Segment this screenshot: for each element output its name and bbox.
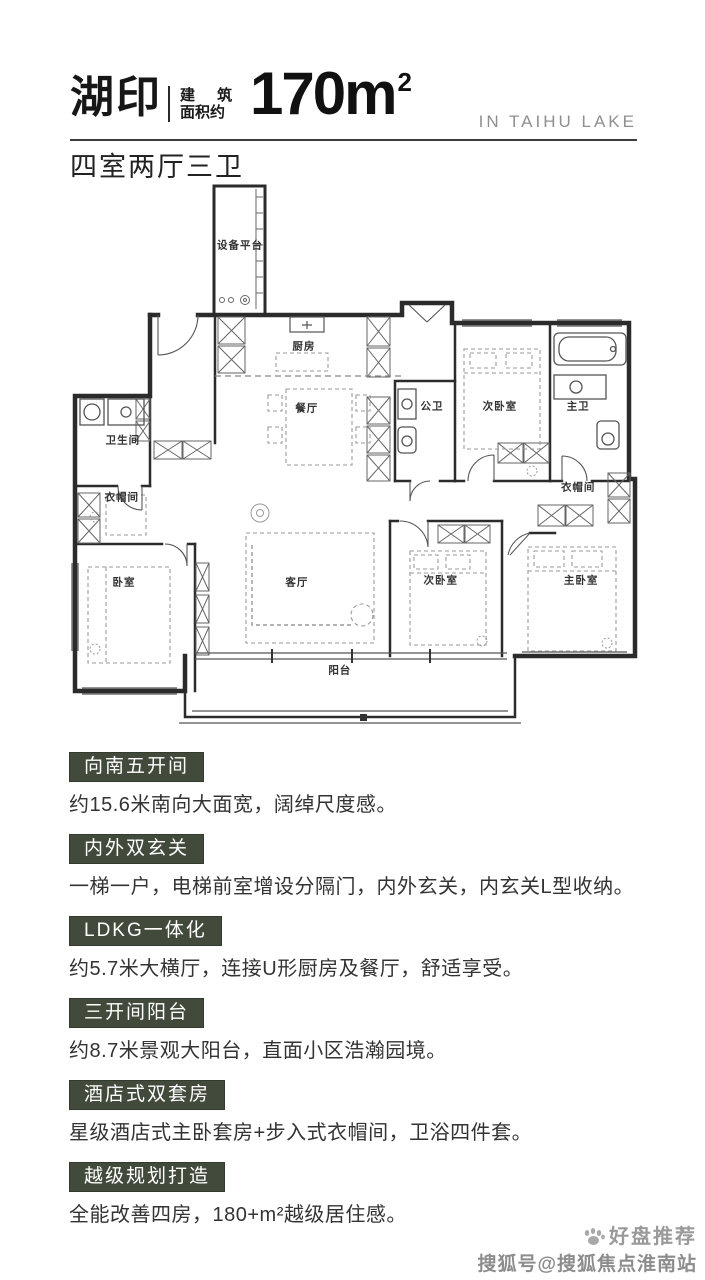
floor-plan-drawing (62, 183, 642, 733)
area-superscript: 2 (397, 67, 411, 97)
feature-badge: 越级规划打造 (69, 1162, 225, 1192)
feature-badge: 内外双玄关 (69, 834, 204, 864)
room-label-kitchen: 厨房 (292, 338, 315, 353)
room-label-master-bath: 主卫 (567, 398, 590, 413)
title-divider (168, 86, 170, 122)
watermark-line1: 好盘推荐 (609, 1226, 697, 1248)
header: 湖印 建 筑 面积约 170m2 IN TAIHU LAKE (70, 60, 637, 140)
project-name: 湖印 (70, 76, 162, 120)
room-label-dining: 餐厅 (295, 400, 318, 415)
room-label-master-bedroom: 主卧室 (564, 573, 599, 588)
feature-description: 约5.7米大横厅，连接U形厨房及餐厅，舒适享受。 (69, 957, 649, 982)
room-label-living: 客厅 (285, 574, 308, 589)
room-label-cloakroom-west: 衣帽间 (104, 490, 139, 505)
room-label-public-bath: 公卫 (421, 398, 444, 413)
area-prefix-line1: 建 筑 (180, 87, 246, 104)
feature-description: 约8.7米景观大阳台，直面小区浩瀚园境。 (69, 1039, 649, 1064)
paw-icon (583, 1228, 605, 1246)
room-label-bath-west: 卫生间 (106, 432, 141, 447)
room-label-bedroom2-north: 次卧室 (483, 398, 518, 413)
feature-description: 约15.6米南向大面宽，阔绰尺度感。 (69, 793, 649, 818)
watermark-brand: 好盘推荐 (477, 1220, 697, 1249)
flyer-page: 湖印 建 筑 面积约 170m2 IN TAIHU LAKE 四室两厅三卫 (0, 0, 705, 1280)
feature-item: 向南五开间 约15.6米南向大面宽，阔绰尺度感。 (69, 752, 649, 834)
feature-description: 一梯一户，电梯前室增设分隔门，内外玄关，内玄关L型收纳。 (69, 875, 649, 900)
room-label-balcony: 阳台 (328, 662, 351, 677)
area-number: 170m (250, 60, 395, 127)
feature-item: 内外双玄关 一梯一户，电梯前室增设分隔门，内外玄关，内玄关L型收纳。 (69, 834, 649, 916)
floor-plan: 设备平台 厨房 餐厅 公卫 次卧室 主卫 卫生间 衣帽间 卧室 客厅 次卧室 主… (62, 183, 642, 733)
watermark-line2: 搜狐号@搜狐焦点淮南站 (477, 1249, 697, 1276)
feature-item: 酒店式双套房 星级酒店式主卧套房+步入式衣帽间，卫浴四件套。 (69, 1080, 649, 1162)
room-label-equipment-platform: 设备平台 (217, 238, 263, 253)
room-label-cloakroom-east: 衣帽间 (561, 480, 596, 495)
feature-item: 三开间阳台 约8.7米景观大阳台，直面小区浩瀚园境。 (69, 998, 649, 1080)
area-value: 170m2 (250, 64, 410, 124)
feature-badge: 酒店式双套房 (69, 1080, 225, 1110)
feature-item: LDKG一体化 约5.7米大横厅，连接U形厨房及餐厅，舒适享受。 (69, 916, 649, 998)
feature-badge: 三开间阳台 (69, 998, 204, 1028)
layout-summary: 四室两厅三卫 (70, 145, 244, 184)
header-rule (70, 139, 637, 141)
feature-list: 向南五开间 约15.6米南向大面宽，阔绰尺度感。 内外双玄关 一梯一户，电梯前室… (69, 752, 649, 1244)
watermark: 好盘推荐 搜狐号@搜狐焦点淮南站 (477, 1220, 697, 1276)
tagline-en: IN TAIHU LAKE (479, 112, 637, 132)
feature-badge: 向南五开间 (69, 752, 204, 782)
area-prefix: 建 筑 面积约 (180, 87, 246, 121)
room-label-bedroom2-south: 次卧室 (423, 573, 458, 588)
feature-description: 星级酒店式主卧套房+步入式衣帽间，卫浴四件套。 (69, 1121, 649, 1146)
room-label-bedroom-west: 卧室 (113, 574, 136, 589)
area-prefix-line2: 面积约 (180, 104, 246, 121)
feature-badge: LDKG一体化 (69, 916, 222, 946)
